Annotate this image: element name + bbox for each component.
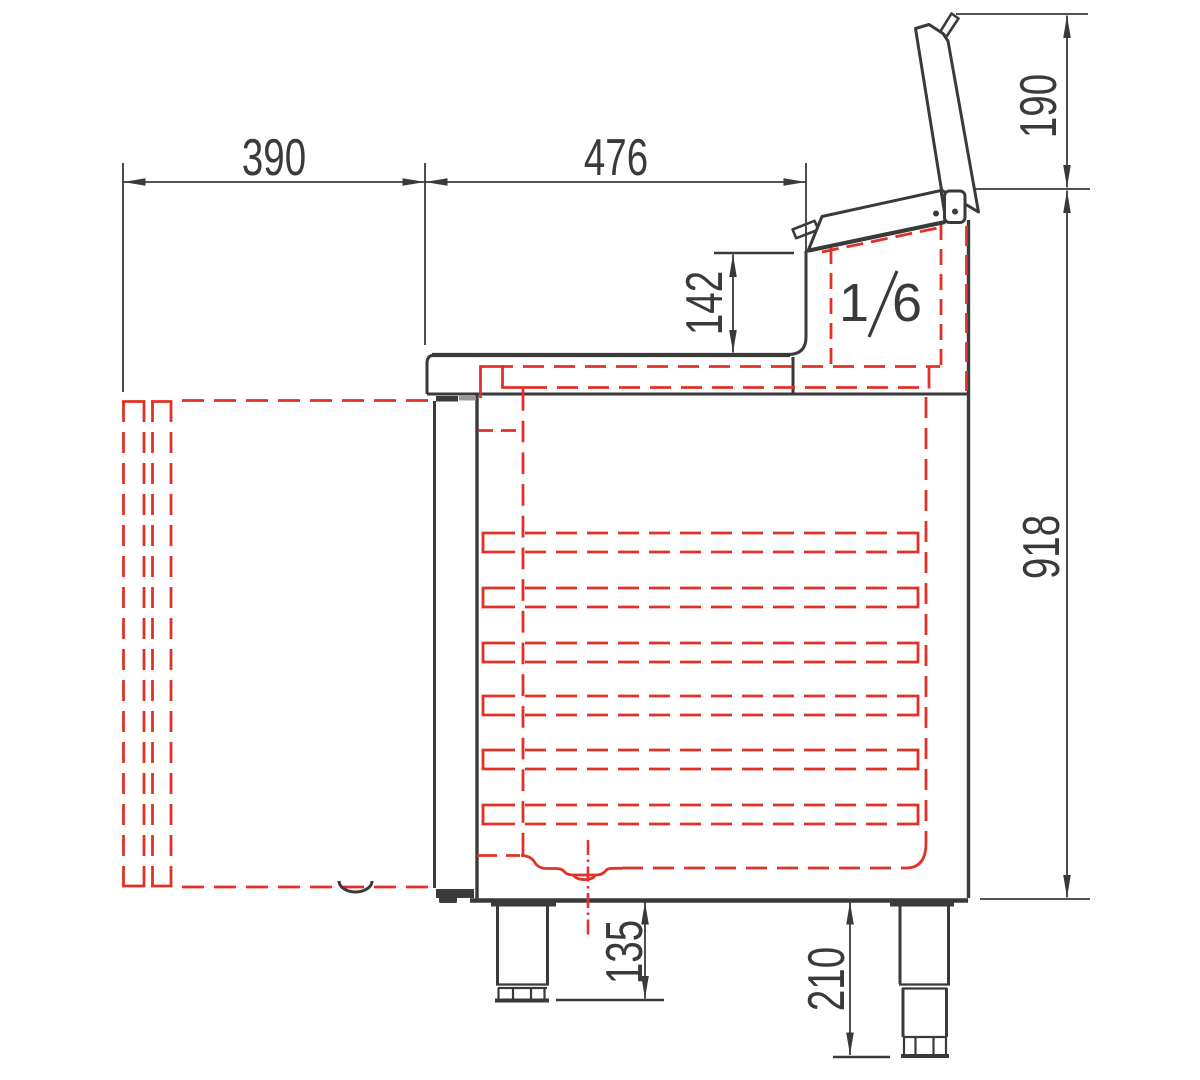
svg-text:210: 210: [797, 947, 855, 1011]
svg-text:142: 142: [675, 271, 733, 335]
svg-text:135: 135: [595, 920, 653, 984]
svg-text:476: 476: [584, 128, 648, 186]
svg-text:190: 190: [1009, 74, 1067, 138]
svg-text:6: 6: [892, 273, 922, 333]
svg-text:918: 918: [1012, 515, 1070, 579]
svg-text:390: 390: [242, 128, 306, 186]
svg-text:1: 1: [839, 273, 869, 333]
